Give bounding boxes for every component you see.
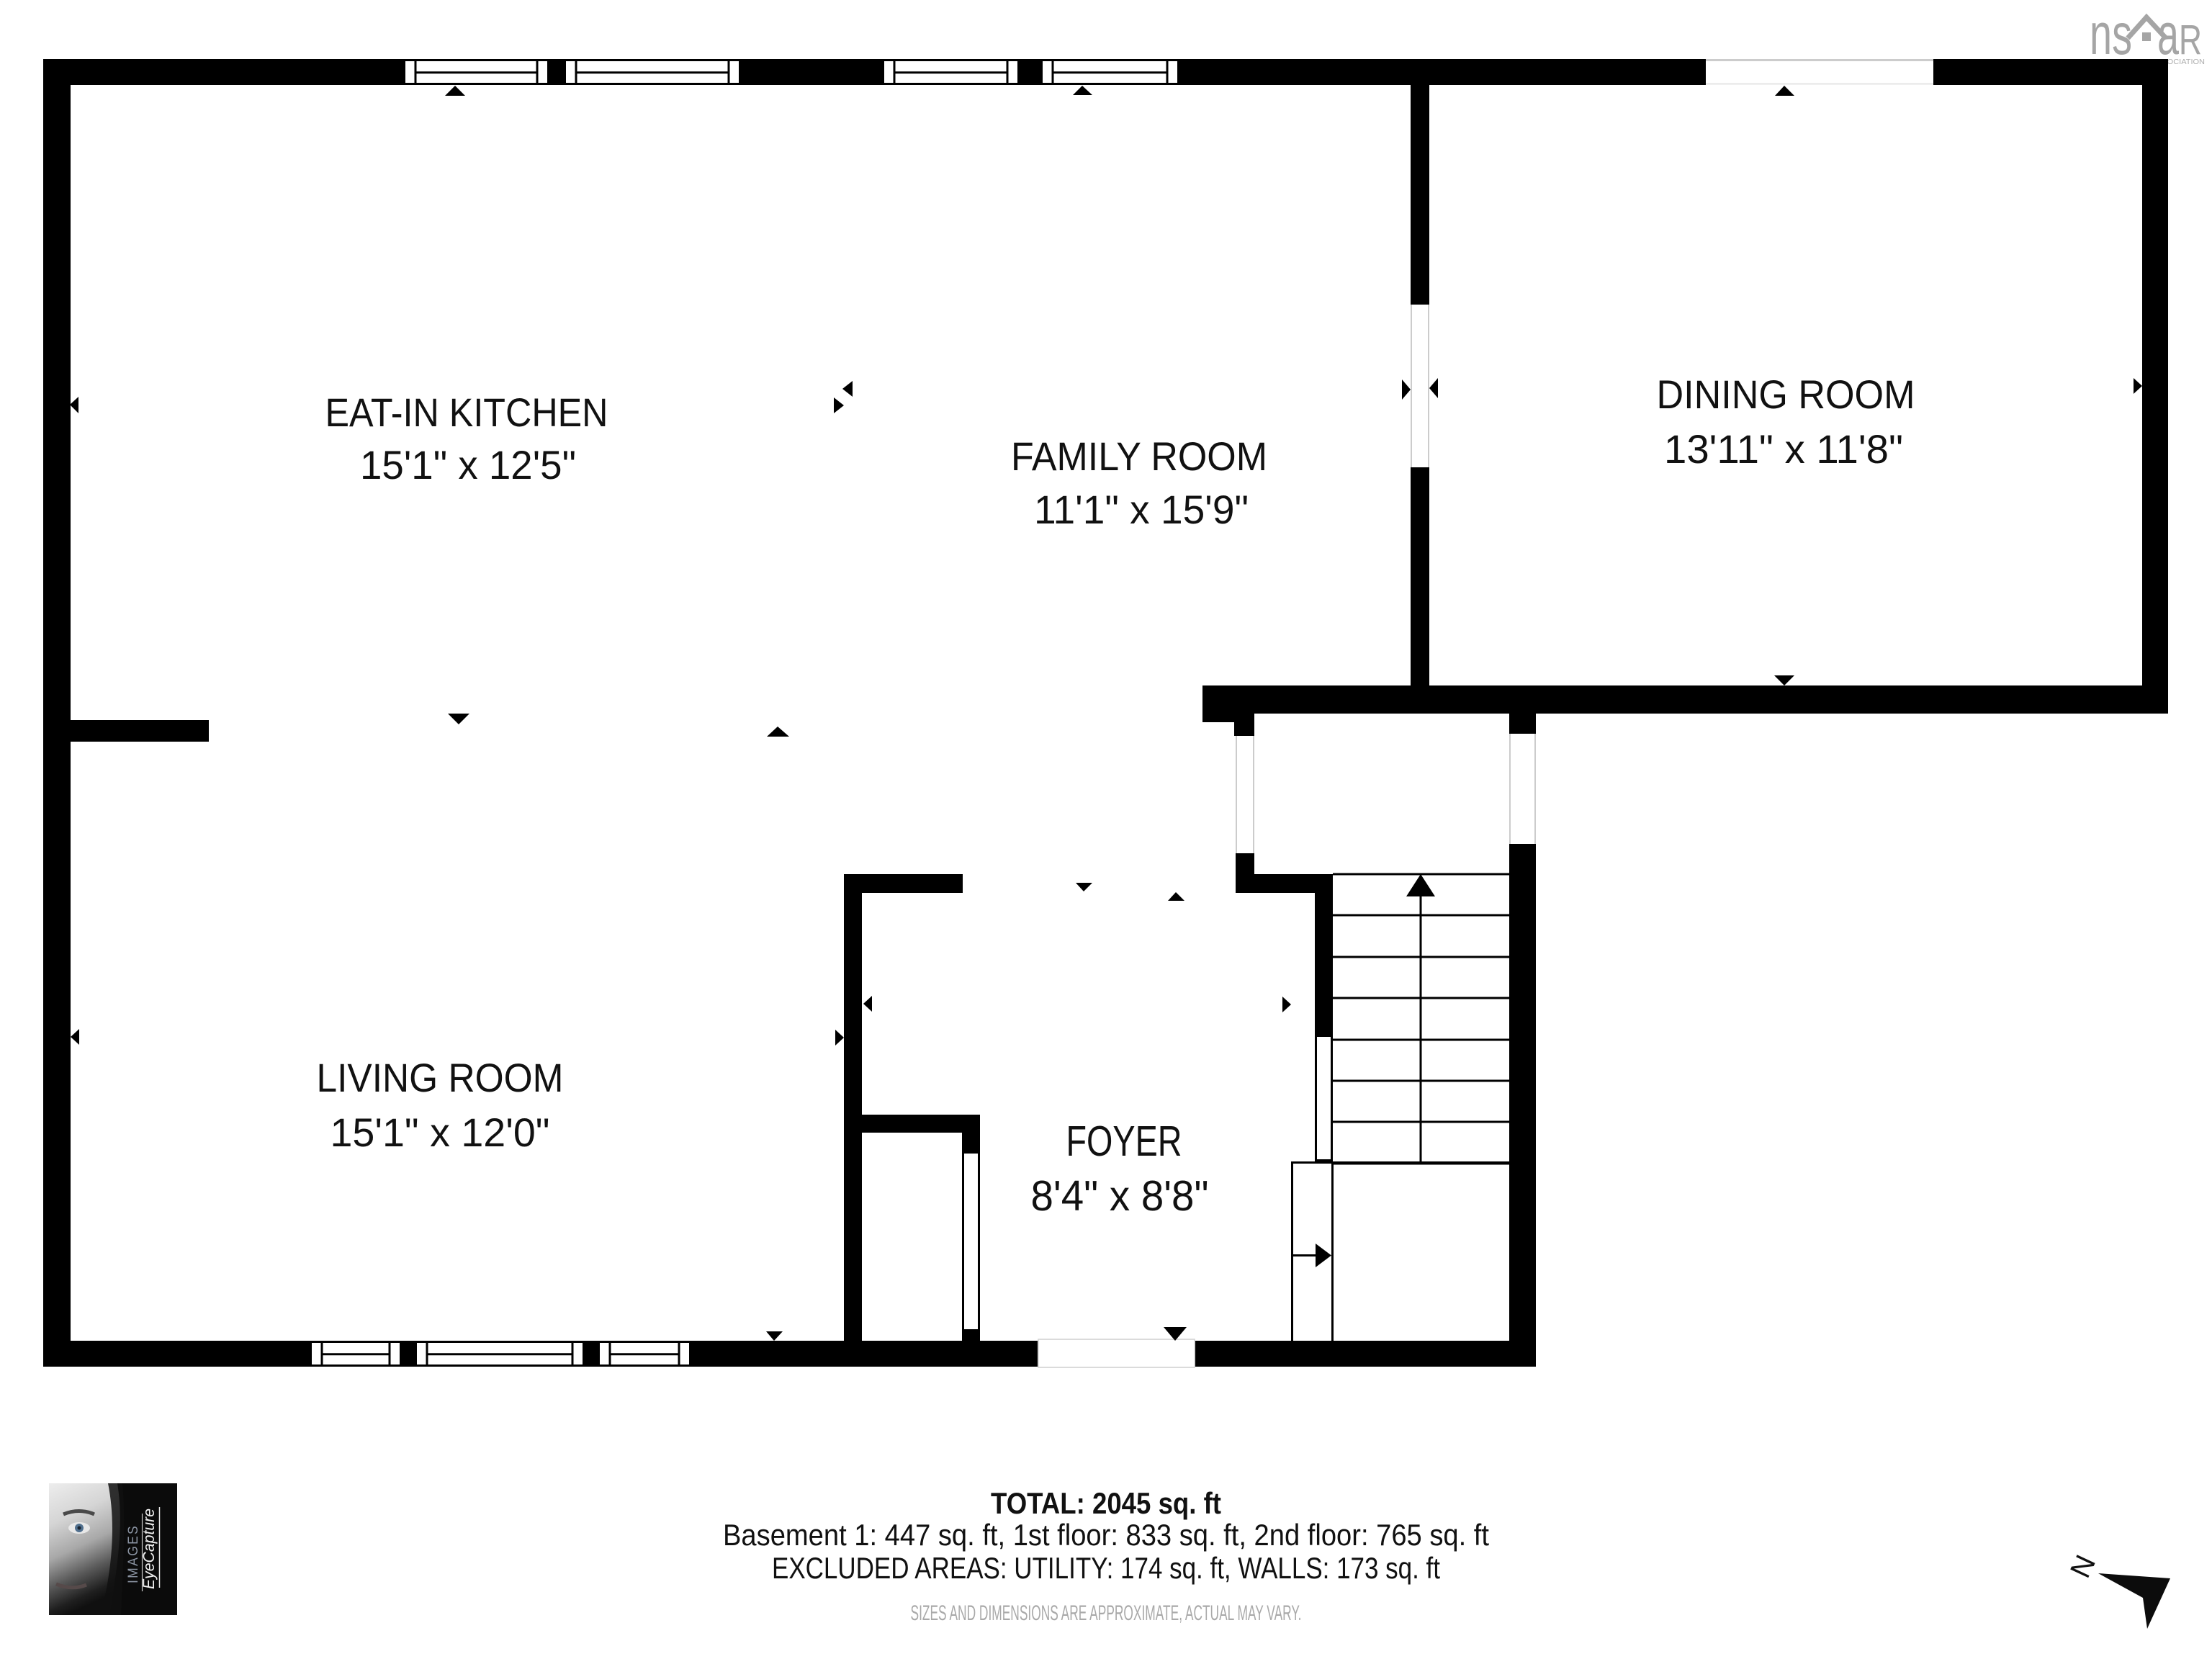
svg-text:LIVING ROOM: LIVING ROOM bbox=[317, 1055, 564, 1100]
svg-text:EXCLUDED AREAS: UTILITY: 174 s: EXCLUDED AREAS: UTILITY: 174 sq. ft, WAL… bbox=[772, 1551, 1440, 1585]
svg-text:ns: ns bbox=[2090, 2, 2132, 67]
svg-text:R: R bbox=[2179, 17, 2202, 63]
svg-text:8'4" x 8'8": 8'4" x 8'8" bbox=[1031, 1172, 1209, 1220]
svg-text:FAMILY ROOM: FAMILY ROOM bbox=[1011, 433, 1267, 479]
svg-text:TOTAL: 2045 sq. ft: TOTAL: 2045 sq. ft bbox=[991, 1486, 1221, 1520]
svg-text:SIZES AND DIMENSIONS ARE APPRO: SIZES AND DIMENSIONS ARE APPROXIMATE, AC… bbox=[911, 1601, 1302, 1625]
svg-text:IMAGES: IMAGES bbox=[126, 1524, 141, 1583]
svg-text:DINING ROOM: DINING ROOM bbox=[1657, 372, 1915, 417]
svg-text:13'11" x 11'8": 13'11" x 11'8" bbox=[1664, 426, 1903, 472]
svg-text:15'1" x 12'5": 15'1" x 12'5" bbox=[360, 442, 576, 487]
svg-text:FOYER: FOYER bbox=[1066, 1118, 1182, 1165]
svg-text:11'1" x 15'9": 11'1" x 15'9" bbox=[1034, 487, 1249, 532]
svg-text:EyeCapture: EyeCapture bbox=[140, 1509, 158, 1589]
svg-text:a: a bbox=[2157, 2, 2180, 67]
svg-text:15'1" x 12'0": 15'1" x 12'0" bbox=[331, 1110, 550, 1155]
svg-text:EAT-IN KITCHEN: EAT-IN KITCHEN bbox=[325, 390, 608, 435]
svg-text:Basement 1: 447 sq. ft, 1st fl: Basement 1: 447 sq. ft, 1st floor: 833 s… bbox=[723, 1518, 1489, 1552]
